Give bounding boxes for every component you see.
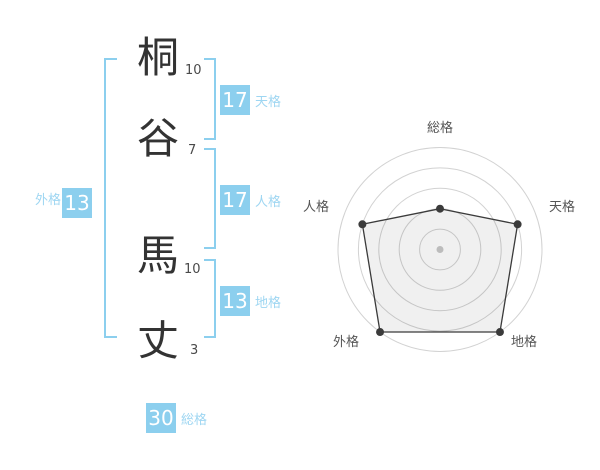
radar-data-point <box>496 328 504 336</box>
stroke-count-3: 10 <box>184 263 201 277</box>
name-char-3: 馬 <box>136 234 180 278</box>
jinkaku-bracket <box>204 148 216 249</box>
radar-axis-soukaku: 総格 <box>427 121 453 136</box>
chikaku-bracket <box>204 259 216 338</box>
radar-chart <box>295 104 585 396</box>
soukaku-label: 総格 <box>181 414 207 428</box>
gaikaku-value-box: 13 <box>62 188 92 218</box>
radar-axis-tenkaku: 天格 <box>549 200 575 215</box>
tenkaku-value-box: 17 <box>220 85 250 115</box>
radar-data-polygon <box>362 209 517 332</box>
tenkaku-bracket <box>204 58 216 140</box>
name-char-4: 丈 <box>136 319 180 363</box>
name-char-2: 谷 <box>136 117 180 161</box>
jinkaku-label: 人格 <box>255 196 281 210</box>
stroke-count-4: 3 <box>190 344 198 358</box>
radar-data-point <box>376 328 384 336</box>
radar-axis-gaikaku: 外格 <box>333 335 359 350</box>
name-char-1: 桐 <box>136 36 180 80</box>
chikaku-label: 地格 <box>255 297 281 311</box>
radar-axis-jinkaku: 人格 <box>303 200 329 215</box>
stroke-count-1: 10 <box>185 64 202 78</box>
radar-data-point <box>514 220 522 228</box>
radar-data-point <box>358 220 366 228</box>
jinkaku-value-box: 17 <box>220 185 250 215</box>
radar-axis-chikaku: 地格 <box>511 335 537 350</box>
gaikaku-bracket <box>104 58 117 338</box>
gaikaku-label: 外格 <box>35 194 61 208</box>
stroke-count-2: 7 <box>188 144 196 158</box>
radar-center-dot <box>437 246 444 253</box>
chikaku-value-box: 13 <box>220 286 250 316</box>
name-fortune-panel: 桐 谷 馬 丈 10 7 10 3 17 天格 17 人格 13 地格 外格 1… <box>0 0 600 470</box>
soukaku-value-box: 30 <box>146 403 176 433</box>
tenkaku-label: 天格 <box>255 96 281 110</box>
radar-data-point <box>436 205 444 213</box>
